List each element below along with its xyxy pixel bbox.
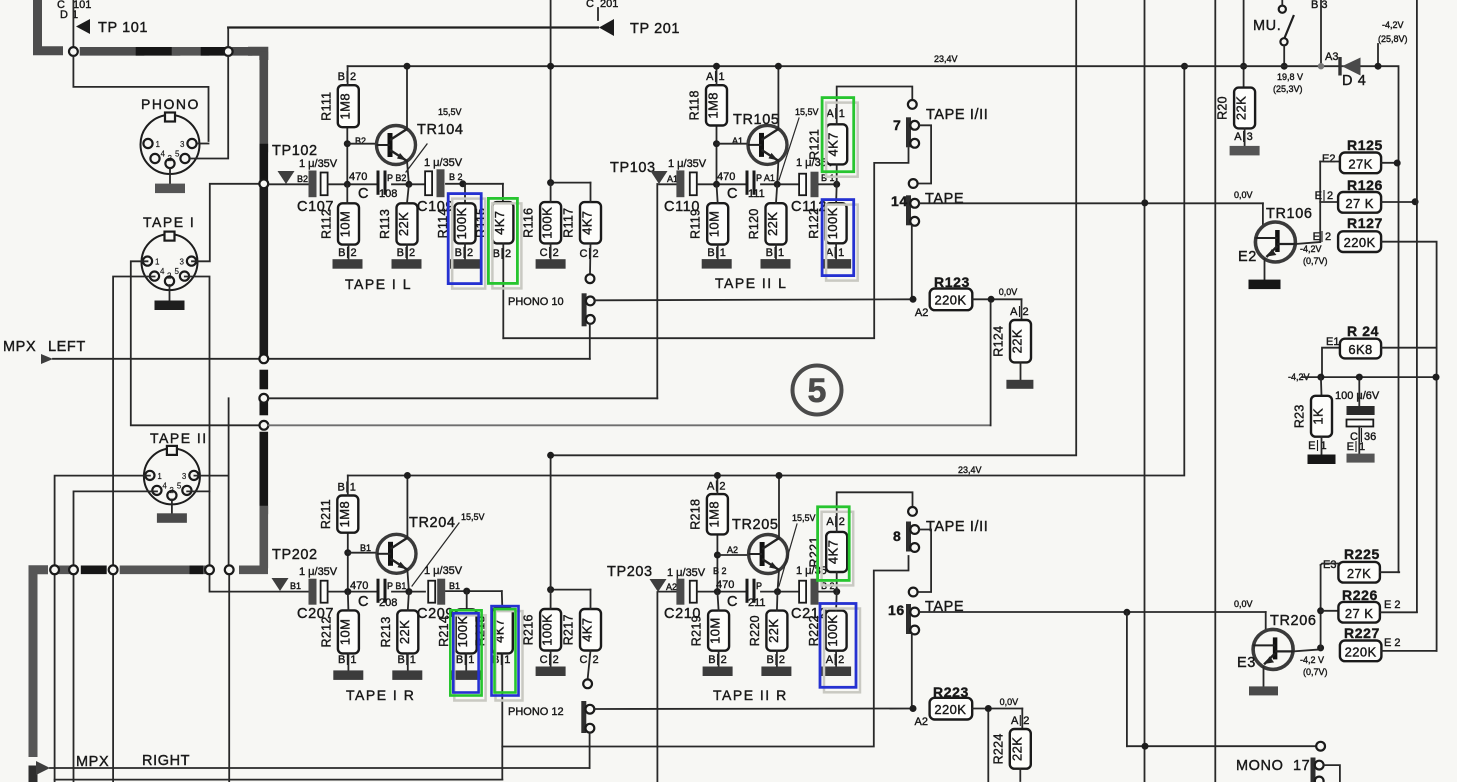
svg-text:P A1: P A1 bbox=[756, 173, 775, 183]
svg-text:R226: R226 bbox=[1342, 587, 1378, 603]
svg-text:22K: 22K bbox=[766, 618, 781, 642]
svg-text:R120: R120 bbox=[747, 208, 761, 239]
svg-text:2: 2 bbox=[779, 654, 785, 666]
svg-text:R111: R111 bbox=[319, 92, 333, 121]
svg-text:E: E bbox=[1308, 440, 1315, 452]
svg-text:2: 2 bbox=[467, 247, 473, 259]
svg-text:3: 3 bbox=[182, 472, 187, 481]
svg-text:2: 2 bbox=[593, 654, 599, 666]
svg-text:C: C bbox=[727, 186, 738, 202]
svg-text:C: C bbox=[727, 594, 738, 610]
svg-text:5: 5 bbox=[808, 372, 827, 410]
svg-text:7: 7 bbox=[893, 117, 901, 133]
svg-text:MU.: MU. bbox=[1253, 18, 1281, 34]
svg-text:1: 1 bbox=[156, 140, 161, 149]
svg-text:2: 2 bbox=[1325, 231, 1331, 243]
svg-text:TR105: TR105 bbox=[733, 112, 780, 128]
svg-text:-4,2V: -4,2V bbox=[1300, 244, 1322, 254]
svg-text:1: 1 bbox=[155, 258, 160, 267]
svg-text:R 24: R 24 bbox=[1347, 323, 1379, 339]
svg-text:220K: 220K bbox=[1345, 645, 1377, 660]
svg-text:R112: R112 bbox=[320, 209, 334, 239]
svg-text:R121: R121 bbox=[808, 129, 822, 160]
svg-text:R211: R211 bbox=[319, 499, 333, 529]
svg-text:2: 2 bbox=[409, 247, 415, 259]
svg-text:100K: 100K bbox=[455, 615, 470, 647]
svg-text:R119: R119 bbox=[689, 209, 703, 239]
svg-text:3: 3 bbox=[180, 258, 185, 267]
svg-text:211: 211 bbox=[748, 597, 766, 609]
svg-text:TAPE I L: TAPE I L bbox=[345, 276, 412, 292]
svg-text:P B1: P B1 bbox=[387, 581, 406, 591]
svg-text:R127: R127 bbox=[1347, 215, 1383, 231]
svg-text:D 4: D 4 bbox=[1342, 73, 1366, 89]
svg-text:2: 2 bbox=[719, 481, 725, 493]
svg-text:2: 2 bbox=[721, 654, 727, 666]
svg-text:100K: 100K bbox=[540, 207, 555, 239]
svg-text:D: D bbox=[60, 9, 68, 21]
svg-text:-4,2 V: -4,2 V bbox=[1300, 655, 1324, 665]
svg-text:B: B bbox=[707, 247, 714, 259]
svg-text:C: C bbox=[358, 594, 369, 610]
svg-text:TAPE I/II: TAPE I/II bbox=[926, 107, 988, 123]
svg-text:2: 2 bbox=[553, 247, 559, 259]
svg-text:1 μ/35V: 1 μ/35V bbox=[668, 158, 707, 170]
svg-text:100K: 100K bbox=[825, 207, 840, 239]
svg-text:1: 1 bbox=[157, 472, 162, 481]
svg-text:8: 8 bbox=[893, 528, 901, 544]
svg-text:B: B bbox=[766, 247, 773, 259]
svg-text:B: B bbox=[338, 654, 345, 666]
svg-text:100K: 100K bbox=[825, 615, 840, 647]
svg-text:A: A bbox=[1234, 131, 1242, 143]
svg-text:B: B bbox=[455, 247, 462, 259]
svg-text:27 K: 27 K bbox=[1345, 606, 1373, 621]
svg-text:PHONO 12: PHONO 12 bbox=[508, 706, 564, 718]
svg-text:15,5V: 15,5V bbox=[795, 107, 819, 117]
svg-text:4: 4 bbox=[162, 481, 167, 490]
svg-text:1M8: 1M8 bbox=[706, 501, 721, 528]
svg-text:1 μ/35V: 1 μ/35V bbox=[299, 158, 338, 170]
svg-text:A2: A2 bbox=[666, 582, 677, 592]
svg-text:1 μ/35V: 1 μ/35V bbox=[424, 157, 463, 169]
svg-text:108: 108 bbox=[379, 188, 397, 200]
svg-text:A: A bbox=[707, 481, 715, 493]
svg-text:B1: B1 bbox=[449, 581, 460, 591]
svg-text:B: B bbox=[338, 247, 345, 259]
svg-text:470: 470 bbox=[350, 580, 368, 592]
svg-text:TR206: TR206 bbox=[1270, 613, 1317, 629]
svg-text:PHONO: PHONO bbox=[141, 96, 200, 112]
svg-text:B 3: B 3 bbox=[1311, 0, 1328, 11]
svg-text:22K: 22K bbox=[397, 620, 412, 644]
svg-text:2: 2 bbox=[553, 654, 559, 666]
svg-text:4K7: 4K7 bbox=[580, 618, 595, 642]
svg-text:27 K: 27 K bbox=[1345, 196, 1373, 211]
svg-text:TAPE I: TAPE I bbox=[143, 214, 195, 230]
svg-text:B: B bbox=[397, 247, 404, 259]
svg-text:A2: A2 bbox=[915, 307, 928, 319]
svg-text:19,8 V: 19,8 V bbox=[1277, 72, 1303, 82]
svg-text:LEFT: LEFT bbox=[48, 339, 86, 355]
svg-text:TAPE II R: TAPE II R bbox=[713, 687, 788, 703]
svg-text:0,0V: 0,0V bbox=[1234, 599, 1253, 609]
svg-text:1M8: 1M8 bbox=[337, 93, 352, 120]
svg-text:15,5V: 15,5V bbox=[438, 107, 462, 117]
svg-text:220K: 220K bbox=[935, 293, 967, 308]
svg-text:17: 17 bbox=[1293, 758, 1310, 774]
svg-text:R227: R227 bbox=[1344, 625, 1380, 641]
svg-text:4K7: 4K7 bbox=[492, 211, 507, 235]
svg-text:TP 101: TP 101 bbox=[98, 20, 148, 36]
svg-text:TP203: TP203 bbox=[607, 564, 653, 580]
svg-text:R116: R116 bbox=[522, 208, 536, 238]
svg-text:P: P bbox=[756, 581, 762, 591]
svg-text:15,5V: 15,5V bbox=[461, 512, 485, 522]
svg-text:R117: R117 bbox=[562, 208, 576, 238]
svg-text:TP 201: TP 201 bbox=[630, 21, 680, 37]
svg-text:22K: 22K bbox=[1234, 96, 1249, 120]
svg-text:4K7: 4K7 bbox=[826, 540, 841, 564]
svg-text:2: 2 bbox=[167, 272, 172, 281]
svg-text:R216: R216 bbox=[522, 614, 536, 645]
svg-text:5: 5 bbox=[175, 267, 180, 276]
svg-text:470: 470 bbox=[717, 171, 735, 183]
svg-text:2: 2 bbox=[169, 486, 174, 495]
svg-text:E 2: E 2 bbox=[1384, 599, 1401, 611]
svg-text:1: 1 bbox=[350, 482, 356, 494]
svg-text:1M8: 1M8 bbox=[337, 501, 352, 528]
svg-text:100K: 100K bbox=[454, 207, 469, 239]
svg-text:R224: R224 bbox=[991, 733, 1005, 764]
svg-text:TAPE I R: TAPE I R bbox=[346, 687, 415, 703]
svg-text:R20: R20 bbox=[1216, 96, 1230, 120]
svg-text:TAPE: TAPE bbox=[925, 191, 964, 207]
svg-text:220K: 220K bbox=[1344, 235, 1376, 250]
svg-text:10M: 10M bbox=[337, 619, 352, 646]
svg-text:100K: 100K bbox=[540, 614, 555, 646]
svg-text:3: 3 bbox=[1247, 131, 1253, 143]
svg-text:1M8: 1M8 bbox=[706, 92, 721, 119]
svg-text:1K: 1K bbox=[1311, 408, 1326, 425]
svg-text:E2: E2 bbox=[1238, 249, 1257, 265]
svg-text:4K7: 4K7 bbox=[826, 132, 841, 156]
svg-text:R221: R221 bbox=[808, 536, 822, 567]
svg-text:111: 111 bbox=[748, 188, 765, 200]
svg-text:2: 2 bbox=[1023, 306, 1029, 318]
svg-text:B: B bbox=[767, 654, 774, 666]
svg-text:B: B bbox=[338, 71, 345, 83]
svg-text:A2: A2 bbox=[915, 716, 928, 728]
svg-text:4: 4 bbox=[161, 150, 166, 159]
svg-text:22K: 22K bbox=[1010, 329, 1025, 353]
svg-text:1: 1 bbox=[839, 108, 845, 120]
svg-text:B: B bbox=[708, 654, 715, 666]
svg-text:R124: R124 bbox=[992, 326, 1006, 357]
svg-text:E3: E3 bbox=[1237, 655, 1256, 671]
svg-text:R218: R218 bbox=[688, 499, 702, 530]
svg-text:0,0V: 0,0V bbox=[1234, 190, 1253, 200]
svg-text:22K: 22K bbox=[396, 212, 411, 236]
svg-text:2: 2 bbox=[838, 654, 844, 666]
svg-text:C: C bbox=[540, 247, 548, 259]
svg-text:14: 14 bbox=[891, 193, 908, 209]
svg-text:(25,8V): (25,8V) bbox=[1378, 34, 1408, 44]
svg-text:0,0V: 0,0V bbox=[1000, 697, 1019, 707]
svg-text:TR106: TR106 bbox=[1266, 206, 1313, 222]
svg-text:RIGHT: RIGHT bbox=[142, 753, 190, 769]
svg-text:100 μ/6V: 100 μ/6V bbox=[1335, 390, 1380, 402]
svg-text:1: 1 bbox=[719, 71, 725, 83]
svg-text:A: A bbox=[1010, 306, 1018, 318]
svg-text:A: A bbox=[826, 108, 834, 120]
svg-text:B1: B1 bbox=[360, 543, 371, 553]
svg-text:23,4V: 23,4V bbox=[958, 465, 982, 475]
svg-text:TAPE II: TAPE II bbox=[150, 430, 208, 446]
svg-text:0,0V: 0,0V bbox=[999, 287, 1018, 297]
svg-text:1 μ/35V: 1 μ/35V bbox=[299, 566, 338, 578]
svg-text:P B2: P B2 bbox=[387, 173, 406, 183]
svg-text:E3: E3 bbox=[1323, 559, 1336, 571]
svg-text:16: 16 bbox=[888, 602, 905, 618]
svg-text:1: 1 bbox=[410, 654, 416, 666]
svg-text:1: 1 bbox=[778, 247, 784, 259]
svg-text:470: 470 bbox=[349, 171, 367, 183]
svg-text:201: 201 bbox=[600, 0, 618, 10]
svg-text:10M: 10M bbox=[338, 211, 353, 238]
svg-text:E: E bbox=[1315, 190, 1322, 202]
svg-text:220K: 220K bbox=[934, 702, 966, 717]
svg-text:2: 2 bbox=[505, 248, 511, 260]
svg-text:R113: R113 bbox=[378, 209, 392, 239]
svg-text:27K: 27K bbox=[1347, 566, 1371, 581]
svg-text:R125: R125 bbox=[1347, 137, 1383, 153]
svg-text:1: 1 bbox=[504, 654, 510, 666]
svg-text:1: 1 bbox=[838, 247, 844, 259]
svg-text:1 μ/35V: 1 μ/35V bbox=[424, 565, 463, 577]
svg-text:C: C bbox=[358, 186, 369, 202]
svg-text:B: B bbox=[493, 248, 500, 260]
svg-text:R225: R225 bbox=[1344, 546, 1380, 562]
svg-text:R213: R213 bbox=[379, 616, 393, 647]
svg-text:1 μ/35V: 1 μ/35V bbox=[667, 567, 706, 579]
svg-text:1: 1 bbox=[720, 247, 726, 259]
svg-text:R126: R126 bbox=[1347, 177, 1383, 193]
svg-text:C: C bbox=[586, 0, 594, 10]
svg-text:TR205: TR205 bbox=[732, 517, 779, 533]
svg-text:208: 208 bbox=[379, 597, 397, 609]
svg-text:15,5V: 15,5V bbox=[792, 513, 816, 523]
svg-text:R219: R219 bbox=[690, 615, 704, 646]
svg-text:10M: 10M bbox=[708, 617, 723, 644]
svg-text:A2: A2 bbox=[727, 545, 738, 555]
svg-text:TR104: TR104 bbox=[417, 122, 464, 138]
svg-text:B 2: B 2 bbox=[449, 172, 463, 182]
svg-text:B2: B2 bbox=[297, 174, 308, 184]
svg-text:A: A bbox=[826, 516, 834, 528]
svg-text:2: 2 bbox=[1327, 190, 1333, 202]
svg-text:R23: R23 bbox=[1293, 404, 1307, 428]
svg-text:22K: 22K bbox=[765, 212, 780, 236]
svg-text:MONO: MONO bbox=[1236, 758, 1284, 774]
svg-text:5: 5 bbox=[175, 150, 180, 159]
svg-text:C: C bbox=[580, 654, 588, 666]
svg-text:MPX: MPX bbox=[3, 339, 36, 355]
svg-text:B1: B1 bbox=[290, 581, 301, 591]
svg-text:2: 2 bbox=[351, 247, 357, 259]
svg-text:C: C bbox=[540, 654, 548, 666]
svg-text:2: 2 bbox=[1023, 715, 1029, 727]
svg-text:E: E bbox=[1347, 441, 1354, 453]
svg-text:2: 2 bbox=[839, 516, 845, 528]
svg-text:2: 2 bbox=[168, 154, 173, 163]
svg-text:23,4V: 23,4V bbox=[934, 54, 958, 64]
svg-text:E1: E1 bbox=[1326, 336, 1339, 348]
svg-text:27K: 27K bbox=[1348, 157, 1372, 172]
svg-text:A: A bbox=[706, 71, 714, 83]
svg-text:R220: R220 bbox=[748, 615, 762, 646]
svg-text:A: A bbox=[1011, 715, 1019, 727]
svg-text:TP102: TP102 bbox=[272, 143, 318, 159]
svg-text:R217: R217 bbox=[562, 614, 576, 645]
svg-text:C: C bbox=[580, 248, 588, 260]
svg-text:R212: R212 bbox=[319, 616, 333, 647]
svg-text:(0,7V): (0,7V) bbox=[1303, 256, 1328, 266]
svg-text:PHONO 10: PHONO 10 bbox=[508, 296, 564, 308]
svg-text:4: 4 bbox=[160, 267, 165, 276]
svg-text:36: 36 bbox=[1364, 431, 1376, 443]
svg-text:2: 2 bbox=[593, 248, 599, 260]
svg-text:TP103: TP103 bbox=[610, 160, 656, 176]
svg-text:A3: A3 bbox=[1325, 51, 1338, 63]
svg-text:470: 470 bbox=[716, 579, 734, 591]
svg-text:E: E bbox=[1313, 231, 1320, 243]
svg-text:22K: 22K bbox=[1009, 737, 1024, 761]
svg-text:B 2: B 2 bbox=[713, 566, 727, 576]
svg-text:B: B bbox=[456, 654, 463, 666]
svg-text:B 1: B 1 bbox=[821, 173, 835, 183]
svg-text:1: 1 bbox=[468, 654, 474, 666]
svg-text:(0,7V): (0,7V) bbox=[1303, 667, 1328, 677]
svg-text:10M: 10M bbox=[707, 211, 722, 238]
svg-text:1: 1 bbox=[350, 654, 356, 666]
svg-text:4K7: 4K7 bbox=[580, 211, 595, 235]
svg-text:-4,2V: -4,2V bbox=[1382, 20, 1404, 30]
svg-text:R118: R118 bbox=[688, 90, 702, 120]
svg-text:A1: A1 bbox=[667, 174, 678, 184]
svg-text:A: A bbox=[826, 654, 834, 666]
svg-text:B: B bbox=[397, 654, 404, 666]
svg-text:3: 3 bbox=[180, 140, 185, 149]
svg-text:TAPE II L: TAPE II L bbox=[715, 275, 787, 291]
svg-text:2: 2 bbox=[350, 71, 356, 83]
svg-text:B: B bbox=[337, 482, 344, 494]
svg-text:6K8: 6K8 bbox=[1348, 342, 1372, 357]
svg-text:TP202: TP202 bbox=[272, 547, 318, 563]
svg-text:E2: E2 bbox=[1322, 153, 1335, 165]
svg-text:(25,3V): (25,3V) bbox=[1273, 84, 1303, 94]
svg-text:5: 5 bbox=[177, 481, 182, 490]
svg-text:E 2: E 2 bbox=[1384, 637, 1401, 649]
svg-text:TAPE I/II: TAPE I/II bbox=[926, 519, 988, 535]
svg-text:R122: R122 bbox=[807, 208, 821, 239]
svg-text:TR204: TR204 bbox=[409, 515, 456, 531]
